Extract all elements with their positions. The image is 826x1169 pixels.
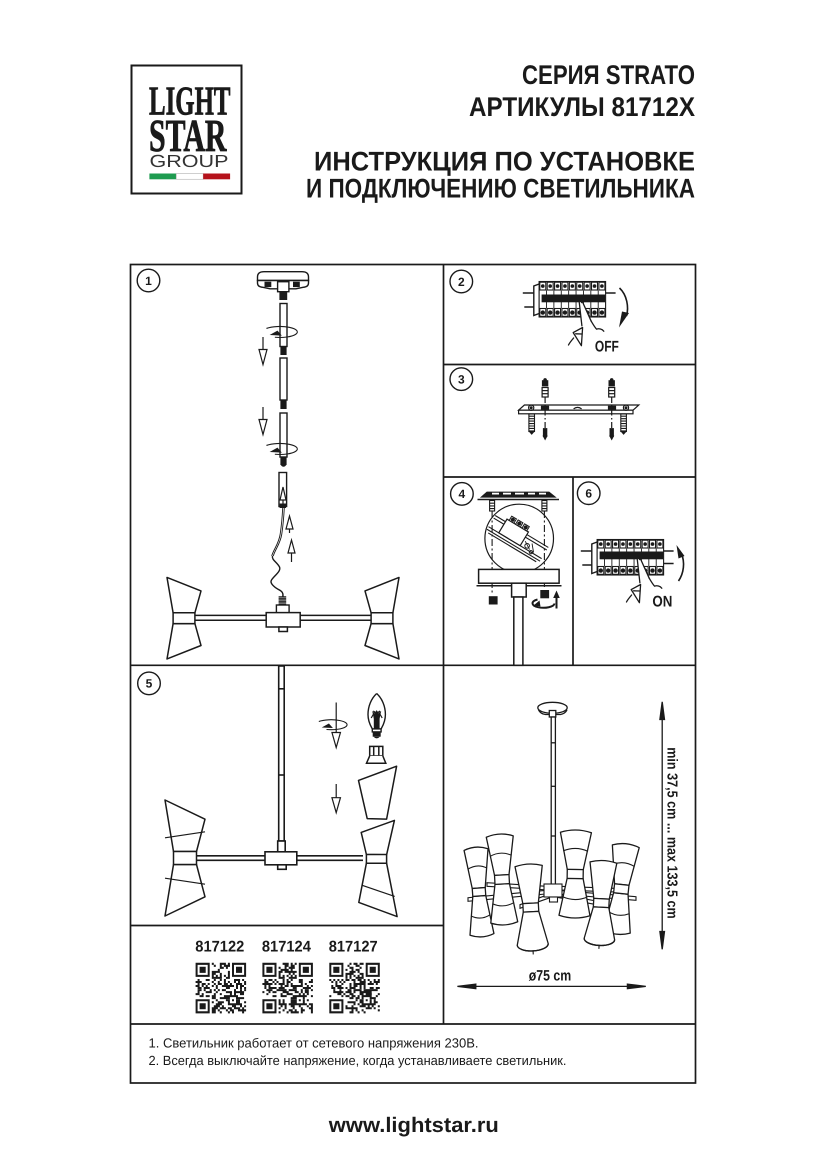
svg-text:817127: 817127 [329, 939, 378, 956]
svg-text:АРТИКУЛЫ 81712X: АРТИКУЛЫ 81712X [469, 92, 695, 122]
svg-text:GROUP: GROUP [150, 151, 229, 171]
svg-text:817124: 817124 [262, 939, 311, 956]
svg-text:ON: ON [652, 594, 672, 611]
svg-text:3: 3 [458, 372, 465, 386]
svg-text:5: 5 [146, 677, 153, 691]
svg-text:817122: 817122 [195, 939, 244, 956]
svg-text:1. Светильник работает от сете: 1. Светильник работает от сетевого напря… [149, 1036, 479, 1051]
svg-text:2: 2 [458, 275, 465, 289]
svg-text:OFF: OFF [595, 338, 619, 355]
svg-text:СЕРИЯ STRATO: СЕРИЯ STRATO [522, 60, 695, 90]
svg-text:4: 4 [459, 487, 466, 501]
svg-text:И ПОДКЛЮЧЕНИЮ СВЕТИЛЬНИКА: И ПОДКЛЮЧЕНИЮ СВЕТИЛЬНИКА [306, 173, 695, 203]
svg-text:6: 6 [585, 487, 592, 501]
svg-text:ИНСТРУКЦИЯ ПО УСТАНОВКЕ: ИНСТРУКЦИЯ ПО УСТАНОВКЕ [314, 147, 695, 177]
svg-text:1: 1 [145, 274, 152, 288]
svg-text:ø75 cm: ø75 cm [529, 968, 572, 985]
svg-text:min 37,5 cm ... max 133,5 cm: min 37,5 cm ... max 133,5 cm [664, 747, 680, 919]
svg-text:www.lightstar.ru: www.lightstar.ru [328, 1114, 499, 1137]
svg-text:2. Всегда выключайте напряжени: 2. Всегда выключайте напряжение, когда у… [149, 1053, 567, 1068]
